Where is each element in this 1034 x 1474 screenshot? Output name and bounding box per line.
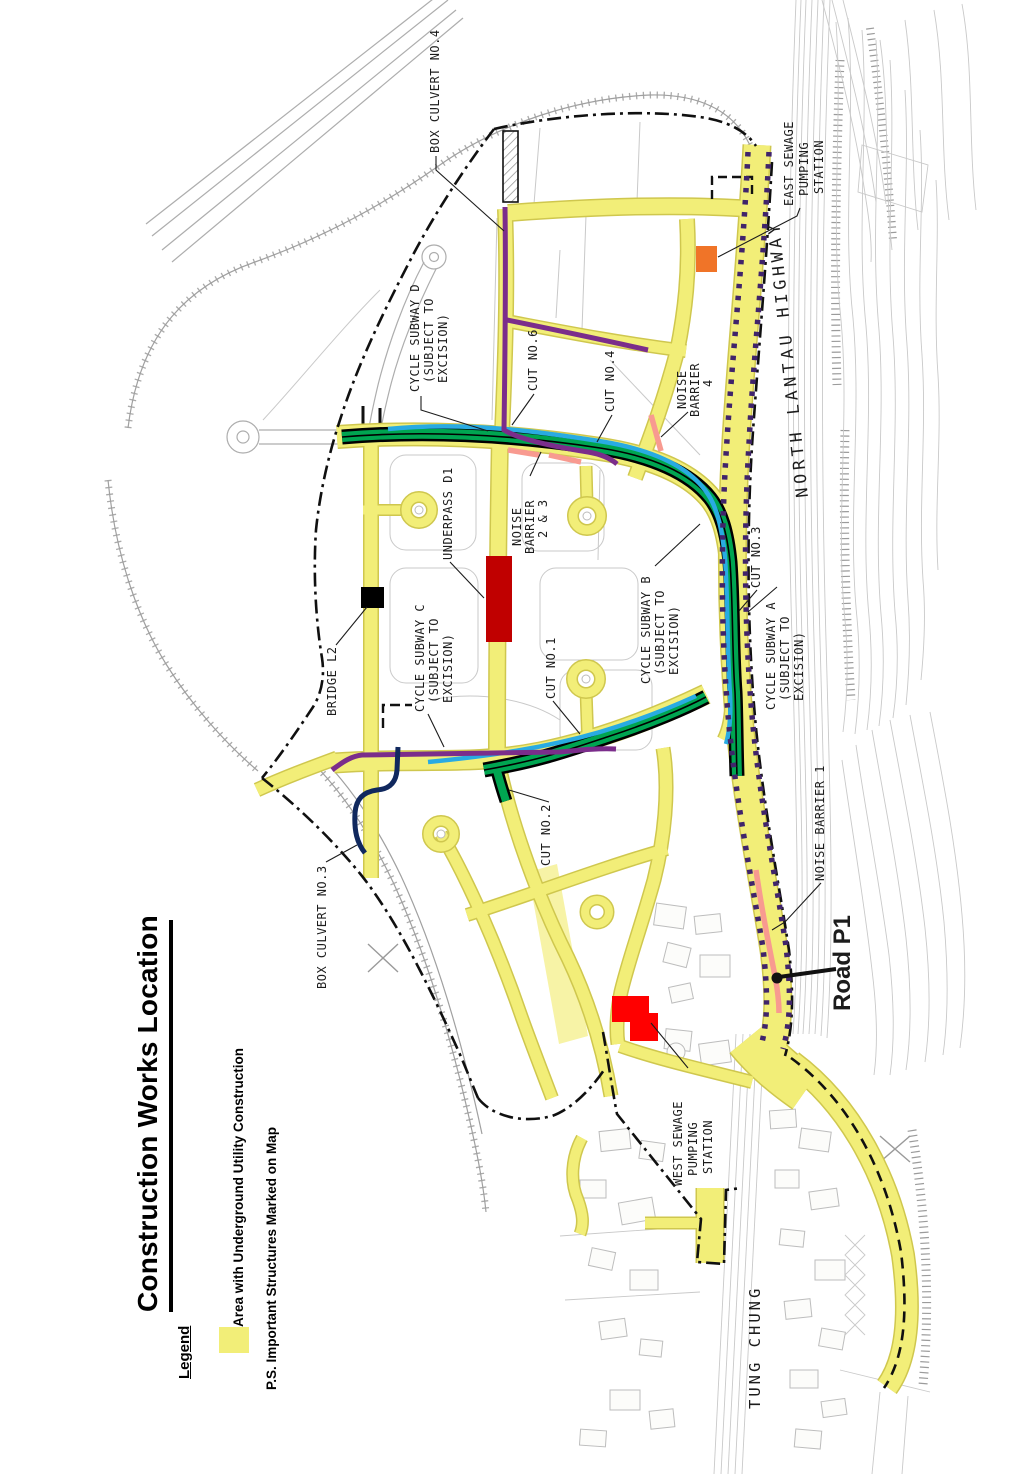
label-cycle-subway-b: CYCLE SUBWAY B (SUBJECT TO EXCISION) (639, 568, 681, 684)
gray-loop-road (227, 421, 338, 453)
legend-ps-note: P.S. Important Structures Marked on Map (264, 1127, 279, 1390)
bridge-l2-structure (361, 587, 384, 608)
label-tung-chung: TUNG CHUNG (746, 1286, 764, 1409)
label-cycle-subway-a: CYCLE SUBWAY A (SUBJECT TO EXCISION) (764, 594, 806, 710)
legend-yellow-swatch (219, 1327, 249, 1353)
legend-heading: Legend (176, 1326, 193, 1379)
label-noise-barrier-4: NOISE BARRIER 4 (675, 355, 715, 417)
label-cycle-subway-d: CYCLE SUBWAY D (SUBJECT TO EXCISION) (408, 276, 450, 392)
label-road-p1: Road P1 (829, 915, 856, 1011)
legend-area-label: Area with Underground Utility Constructi… (231, 1048, 246, 1327)
page-title: Construction Works Location (132, 920, 173, 1312)
road-p1-arrow-dot (772, 973, 783, 984)
construction-works-location-drawing: BOX CULVERT NO.4 EAST SEWAGE PUMPING STA… (0, 0, 1034, 1474)
label-box-culvert-4: BOX CULVERT NO.4 (428, 29, 442, 153)
label-west-sewage-pumping-station: WEST SEWAGE PUMPING STATION (671, 1093, 715, 1186)
topright-linework (822, 0, 976, 262)
label-cut-no6: CUT NO.6 (526, 329, 540, 391)
label-noise-barrier-1: NOISE BARRIER 1 (813, 765, 827, 881)
label-cut-no2: CUT NO.2 (539, 804, 553, 866)
label-bridge-l2: BRIDGE L2 (325, 646, 339, 716)
label-cycle-subway-c: CYCLE SUBWAY C (SUBJECT TO EXCISION) (413, 596, 455, 712)
east-sewage-pumping-station-structure (696, 246, 717, 272)
label-noise-barrier-2-3: NOISE BARRIER 2 & 3 (510, 492, 550, 554)
label-cut-no1: CUT NO.1 (544, 637, 558, 699)
contour-lines (836, 18, 965, 1385)
hatched-structure (503, 131, 518, 202)
topleft-road (146, 0, 463, 262)
label-underpass-d1: UNDERPASS D1 (441, 467, 455, 560)
label-box-culvert-3: BOX CULVERT NO.3 (315, 865, 329, 989)
label-cut-no4: CUT NO.4 (603, 350, 617, 412)
underpass-d1-structure (486, 556, 512, 642)
yellow-road-network (257, 145, 907, 1387)
label-cut-no3: CUT NO.3 (749, 526, 763, 588)
